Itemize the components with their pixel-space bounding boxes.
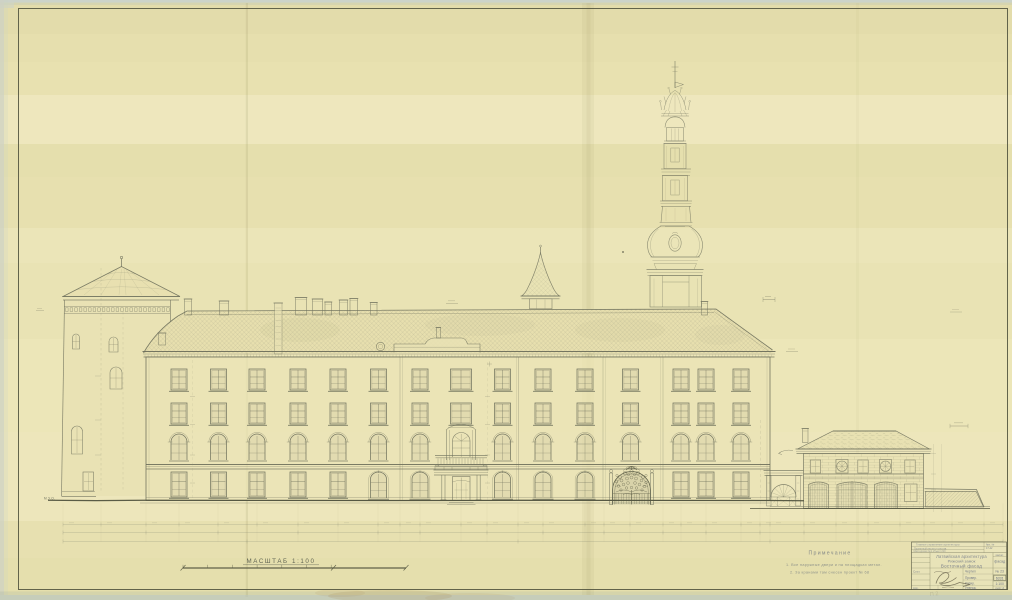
svg-text:Примечание: Примечание <box>808 551 851 557</box>
svg-text:Сост.: Сост. <box>913 570 920 574</box>
svg-text:Провер.: Провер. <box>965 576 977 580</box>
svg-text:Мастерская №1 объект 210: Мастерская №1 объект 210 <box>914 550 947 553</box>
svg-text:Арх. №: Арх. № <box>986 543 995 546</box>
svg-text:Арх.: Арх. <box>913 586 919 590</box>
svg-text:лист 2: лист 2 <box>995 586 1004 590</box>
svg-text:П 2: П 2 <box>930 591 939 598</box>
svg-text:МАСШТАБ 1:100: МАСШТАБ 1:100 <box>246 558 315 565</box>
svg-text:фасад: фасад <box>994 560 1006 564</box>
svg-text:масшт.: масшт. <box>996 554 1005 557</box>
svg-text:Восточный фасад: Восточный фасад <box>941 563 982 568</box>
svg-text:Главное управление архитектуры: Главное управление архитектуры <box>916 542 960 546</box>
svg-text:17-42: 17-42 <box>986 547 993 550</box>
svg-text:6331: 6331 <box>996 576 1004 580</box>
svg-text:Чертил: Чертил <box>965 570 976 574</box>
svg-text:№ 23: № 23 <box>996 570 1004 574</box>
svg-text:Утверд.: Утверд. <box>965 586 976 590</box>
svg-text:М.У.О.: М.У.О. <box>44 497 55 501</box>
svg-text:2. За кранами там снесен проек: 2. За кранами там снесен проект № 68 <box>790 571 869 575</box>
svg-text:1. Все наружные двери и на пло: 1. Все наружные двери и на площадках мет… <box>786 563 882 567</box>
